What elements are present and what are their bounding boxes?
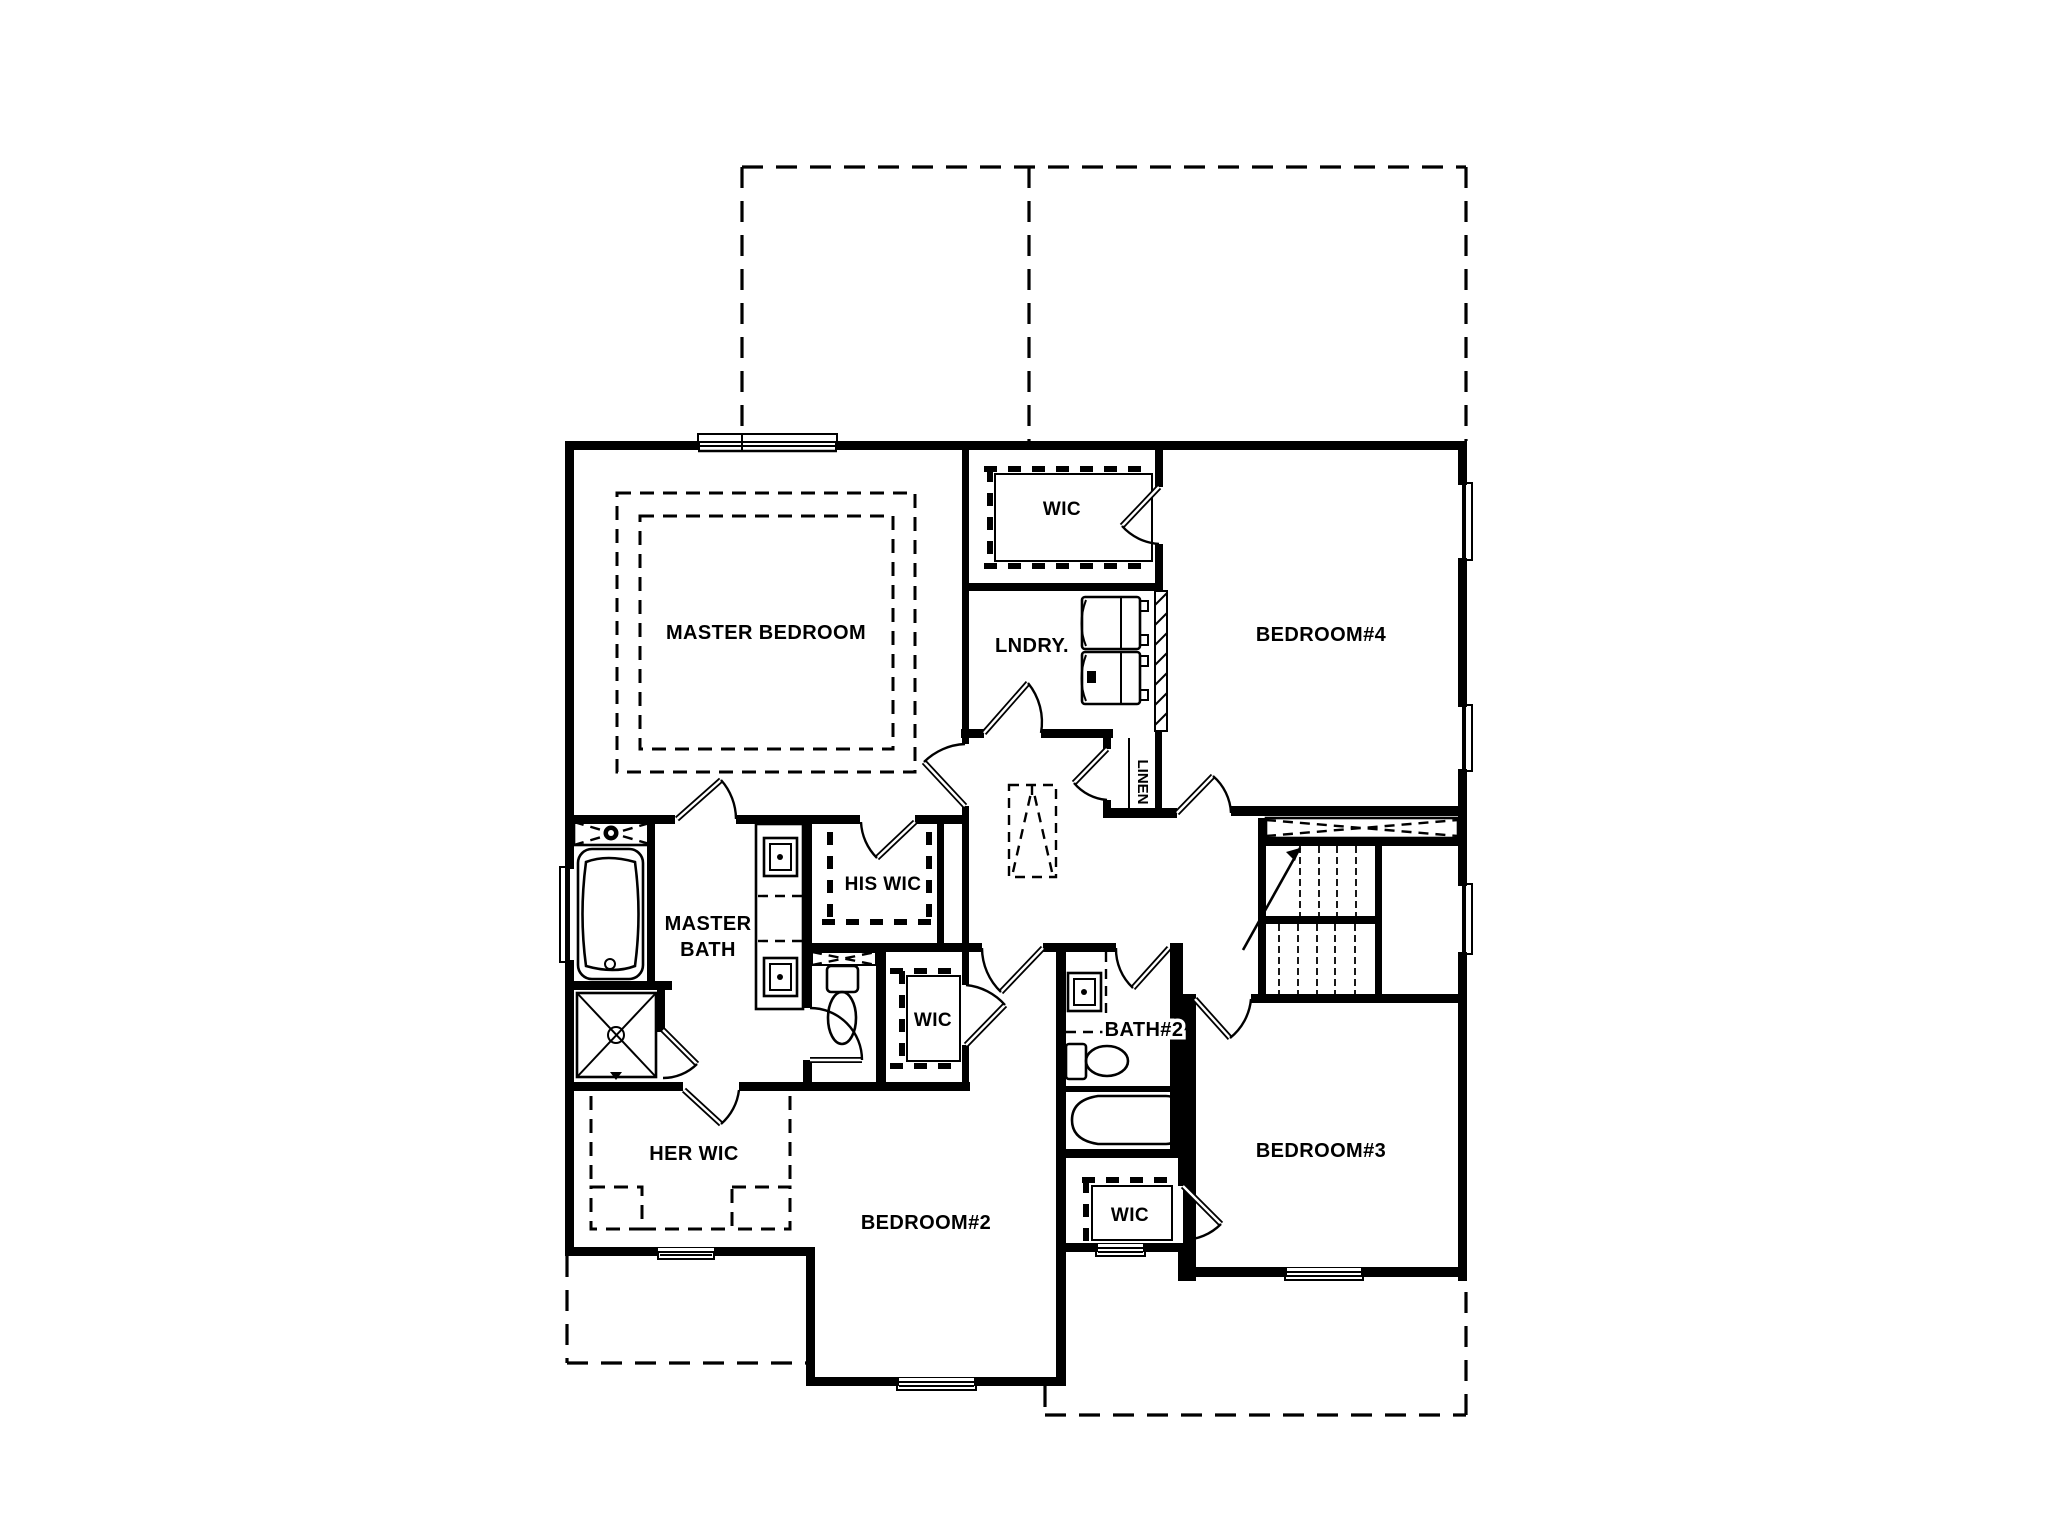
svg-text:LNDRY.: LNDRY.: [995, 635, 1069, 657]
svg-text:MASTER BEDROOM: MASTER BEDROOM: [666, 622, 866, 644]
svg-text:WIC: WIC: [1043, 499, 1081, 520]
svg-text:WIC: WIC: [1111, 1205, 1149, 1226]
svg-text:HIS WIC: HIS WIC: [845, 874, 922, 895]
svg-text:LINEN: LINEN: [1134, 760, 1151, 805]
svg-text:BEDROOM#4: BEDROOM#4: [1256, 624, 1387, 646]
svg-text:BATH: BATH: [680, 939, 736, 961]
svg-text:BATH#2: BATH#2: [1105, 1019, 1184, 1041]
svg-text:WIC: WIC: [914, 1010, 952, 1031]
svg-text:MASTER: MASTER: [665, 913, 752, 935]
svg-text:BEDROOM#2: BEDROOM#2: [861, 1212, 991, 1234]
svg-text:HER WIC: HER WIC: [649, 1143, 738, 1165]
svg-text:BEDROOM#3: BEDROOM#3: [1256, 1140, 1386, 1162]
